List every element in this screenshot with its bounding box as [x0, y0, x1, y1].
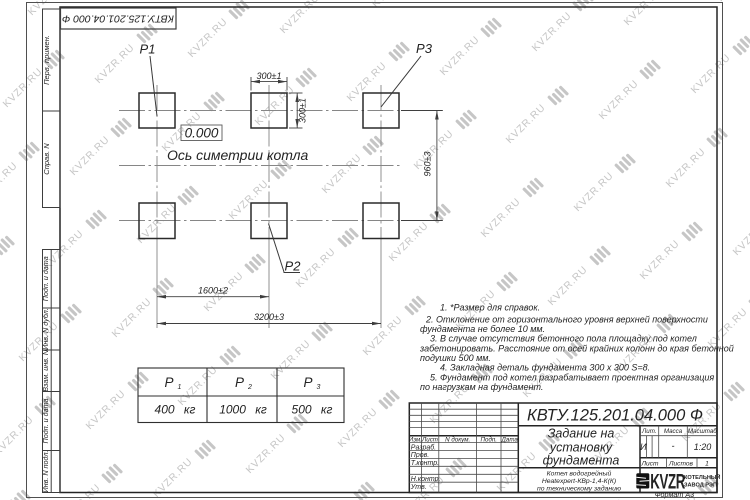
- svg-text:-: -: [672, 441, 675, 451]
- svg-text:2: 2: [247, 384, 252, 391]
- svg-text:КОТЕЛЬНЫЙ: КОТЕЛЬНЫЙ: [684, 473, 720, 481]
- svg-text:P2: P2: [285, 259, 302, 274]
- svg-text:3200±3: 3200±3: [254, 312, 284, 322]
- svg-text:1: 1: [705, 460, 709, 467]
- svg-text:Лист: Лист: [421, 437, 438, 444]
- svg-text:Формат А3: Формат А3: [655, 490, 694, 499]
- svg-text:5. Фундамент под котел разраб: 5. Фундамент под котел разрабатывает про…: [430, 372, 714, 382]
- svg-text:Задание на: Задание на: [548, 427, 615, 441]
- svg-text:Подп. и дата: Подп. и дата: [41, 256, 50, 301]
- svg-text:300±1: 300±1: [298, 98, 308, 123]
- svg-text:Справ. N: Справ. N: [42, 143, 51, 175]
- svg-text:Н.контр.: Н.контр.: [411, 476, 441, 483]
- svg-text:КВТУ.125.201.04.000 Ф: КВТУ.125.201.04.000 Ф: [62, 13, 174, 25]
- svg-text:400 кг: 400 кг: [155, 403, 196, 417]
- svg-text:1600±2: 1600±2: [198, 286, 228, 296]
- svg-text:Утв.: Утв.: [410, 484, 427, 491]
- svg-text:Масса: Масса: [664, 428, 683, 435]
- svg-text:Котел водогрейный: Котел водогрейный: [547, 470, 612, 478]
- svg-text:2. Отклонение от горизонтальн: 2. Отклонение от горизонтального уровня …: [425, 314, 708, 324]
- svg-text:ЗАВОД РЭП: ЗАВОД РЭП: [684, 483, 717, 489]
- svg-text:по техническому заданию: по техническому заданию: [537, 485, 621, 493]
- svg-text:P3: P3: [416, 41, 433, 56]
- svg-text:КВТУ.125.201.04.000 Ф: КВТУ.125.201.04.000 Ф: [527, 407, 703, 425]
- svg-text:Листов: Листов: [668, 460, 694, 467]
- svg-text:Взам. инв. N: Взам. инв. N: [41, 349, 50, 392]
- svg-text:Изм.: Изм.: [409, 437, 422, 444]
- svg-text:фундамента не более 10 мм.: фундамента не более 10 мм.: [420, 324, 545, 334]
- svg-text:300±1: 300±1: [257, 71, 282, 81]
- svg-text:N докум.: N докум.: [445, 437, 470, 444]
- svg-text:Подп. и дата: Подп. и дата: [41, 399, 50, 444]
- svg-text:забетонировать. Расстояние от: забетонировать. Расстояние от осей крайн…: [419, 343, 734, 353]
- svg-text:И: И: [640, 442, 647, 452]
- svg-text:Перв. примен.: Перв. примен.: [42, 35, 51, 85]
- svg-text:установку: установку: [549, 441, 613, 455]
- svg-text:Р: Р: [164, 375, 173, 390]
- svg-text:Разраб.: Разраб.: [411, 443, 436, 451]
- svg-text:Лит.: Лит.: [641, 428, 657, 435]
- svg-text:4. Закладная деталь фундамент: 4. Закладная деталь фундамента 300 x 300…: [440, 363, 650, 373]
- svg-text:1: 1: [178, 384, 182, 391]
- svg-text:960±3: 960±3: [423, 152, 433, 177]
- svg-text:Р: Р: [303, 375, 312, 390]
- svg-text:500 кг: 500 кг: [292, 403, 333, 417]
- svg-text:Лист: Лист: [641, 460, 659, 467]
- svg-text:Heatexpert-КВр-1,4-К(К): Heatexpert-КВр-1,4-К(К): [542, 478, 616, 485]
- svg-text:Подп.: Подп.: [481, 437, 497, 444]
- svg-text:Пров.: Пров.: [411, 452, 430, 459]
- svg-text:3. В случае отсутствия бетонн: 3. В случае отсутствия бетонного пола пл…: [430, 334, 697, 344]
- svg-text:1000 кг: 1000 кг: [219, 403, 267, 417]
- svg-text:Р: Р: [235, 375, 244, 390]
- svg-text:Масштаб: Масштаб: [688, 428, 717, 435]
- svg-text:1:20: 1:20: [694, 442, 712, 452]
- svg-text:Т.контр.: Т.контр.: [411, 460, 439, 467]
- svg-text:Дата: Дата: [501, 437, 519, 444]
- svg-text:P1: P1: [140, 42, 156, 57]
- svg-text:Ось симетрии котла: Ось симетрии котла: [167, 147, 309, 163]
- svg-text:1. *Размер для справок.: 1. *Размер для справок.: [440, 302, 540, 312]
- svg-text:Инв. N дубл.: Инв. N дубл.: [41, 308, 50, 350]
- svg-text:3: 3: [317, 384, 321, 391]
- svg-text:фундамента: фундамента: [543, 454, 620, 468]
- svg-text:подушки 500 мм.: подушки 500 мм.: [420, 353, 491, 363]
- svg-text:Инв. N подл.: Инв. N подл.: [41, 450, 50, 492]
- svg-text:0.000: 0.000: [185, 126, 219, 141]
- svg-text:по нагрузкам на фундамент.: по нагрузкам на фундамент.: [420, 382, 543, 392]
